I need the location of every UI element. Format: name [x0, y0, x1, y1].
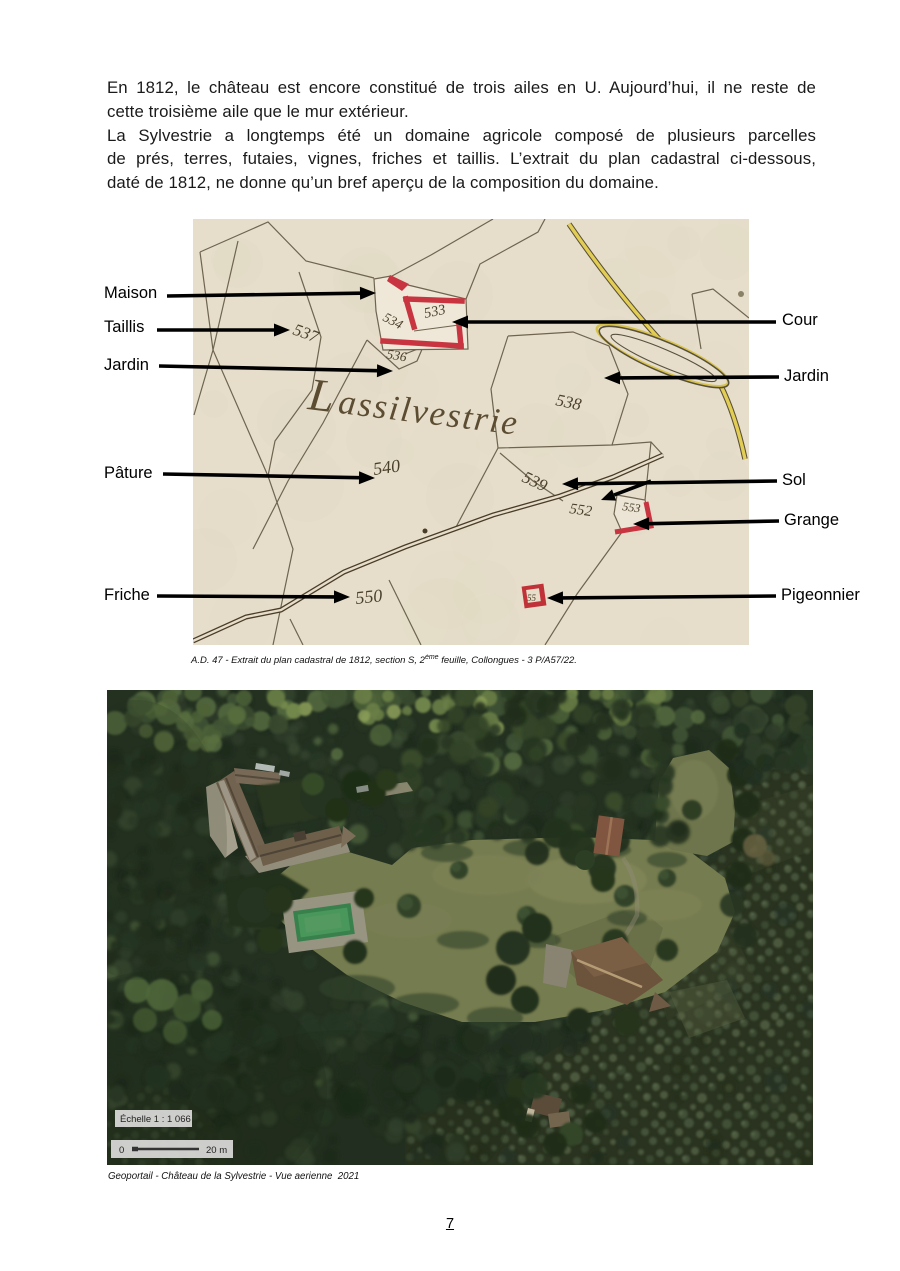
svg-text:20 m: 20 m [206, 1145, 227, 1156]
svg-text:0: 0 [119, 1145, 124, 1156]
svg-text:Échelle 1 : 1 066: Échelle 1 : 1 066 [120, 1114, 191, 1125]
